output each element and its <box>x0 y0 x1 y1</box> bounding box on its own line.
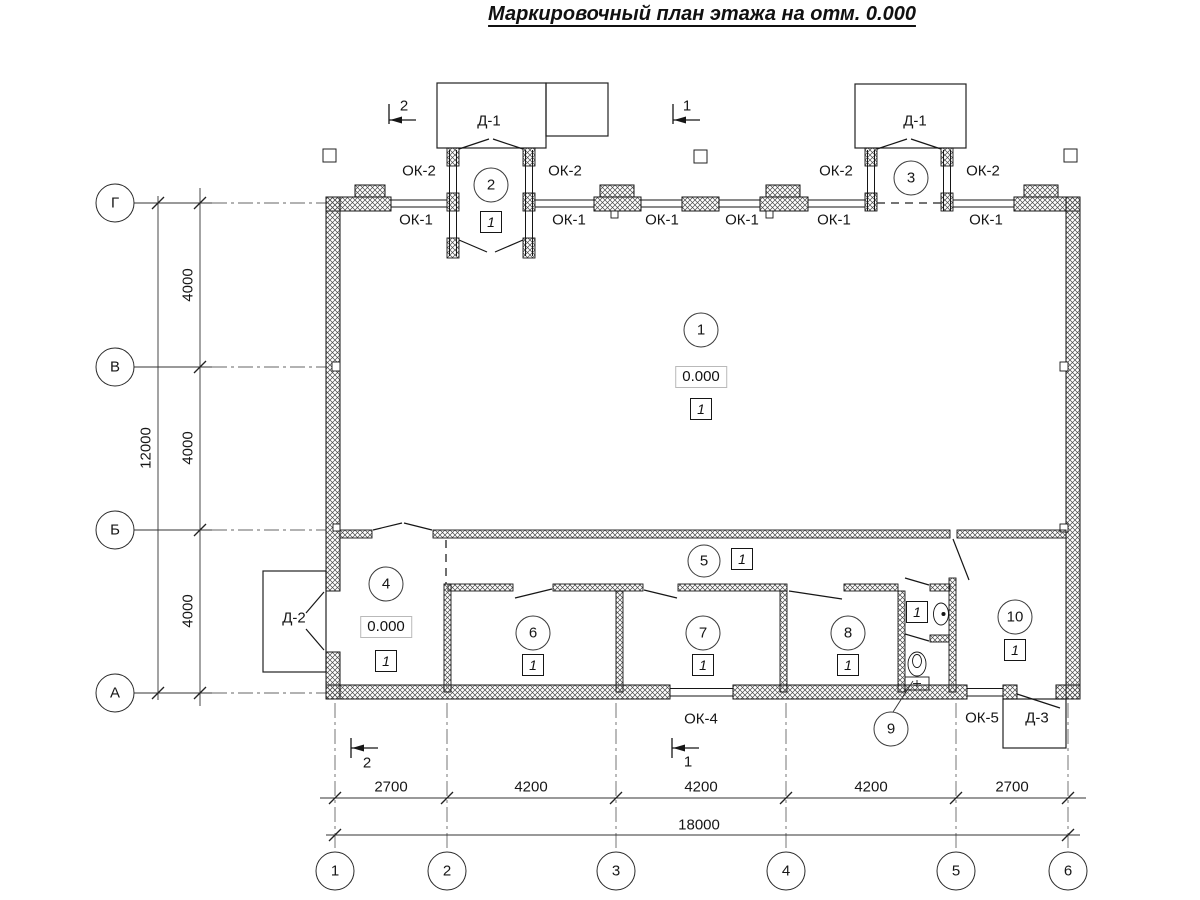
room-number-5: 5 <box>700 554 708 569</box>
window-label-ok1-5: ОК-1 <box>817 213 851 228</box>
axis-col-label-1: 1 <box>331 864 339 879</box>
floor-mark-room7: 1 <box>692 654 714 676</box>
washbasin-icon <box>934 603 949 625</box>
window-label-ok4: ОК-4 <box>684 712 718 727</box>
axis-col-label-6: 6 <box>1064 864 1072 879</box>
room-number-4: 4 <box>382 577 390 592</box>
floor-mark-room4: 1 <box>375 650 397 672</box>
room-number-8: 8 <box>844 626 852 641</box>
window-label-ok1-4: ОК-1 <box>725 213 759 228</box>
door-label-d1-left: Д-1 <box>477 114 501 129</box>
floor-mark-washroom: 1 <box>906 601 928 623</box>
room-number-1: 1 <box>697 323 705 338</box>
room-number-9: 9 <box>887 722 895 737</box>
section-label-1-top: 1 <box>683 99 691 114</box>
axis-row-label-g: Г <box>111 196 119 211</box>
door-label-d3: Д-3 <box>1025 711 1049 726</box>
dim-vertical-1: 4000 <box>181 268 196 301</box>
toilet-icon <box>905 652 929 690</box>
section-label-1-bottom: 1 <box>684 755 692 770</box>
floor-mark-room2: 1 <box>480 211 502 233</box>
porches <box>263 83 1066 748</box>
axis-col-label-2: 2 <box>443 864 451 879</box>
window-label-ok2-4: ОК-2 <box>966 164 1000 179</box>
floor-mark-room1: 1 <box>690 398 712 420</box>
opening-dashed-lines <box>446 203 941 584</box>
drawing-title: Маркировочный план этажа на отм. 0.000 <box>488 3 916 26</box>
axis-col-label-3: 3 <box>612 864 620 879</box>
dim-horizontal-1: 2700 <box>374 780 407 795</box>
dim-vertical-2: 4000 <box>181 431 196 464</box>
dimension-lines <box>134 188 1086 835</box>
room-number-10: 10 <box>1007 610 1024 625</box>
axis-col-label-4: 4 <box>782 864 790 879</box>
window-label-ok1-2: ОК-1 <box>552 213 586 228</box>
axis-col-label-5: 5 <box>952 864 960 879</box>
dim-horizontal-5: 2700 <box>995 780 1028 795</box>
axis-row-label-b: Б <box>110 523 120 538</box>
room-number-3: 3 <box>907 171 915 186</box>
floor-mark-room10: 1 <box>1004 639 1026 661</box>
section-label-2-bottom: 2 <box>363 756 371 771</box>
dim-horizontal-3: 4200 <box>684 780 717 795</box>
dim-vertical-3: 4000 <box>181 594 196 627</box>
dimension-ticks <box>152 197 1074 841</box>
drawing-sheet: Маркировочный план этажа на отм. 0.000 Г… <box>0 0 1200 900</box>
dim-horizontal-total: 18000 <box>678 818 720 833</box>
window-label-ok2-2: ОК-2 <box>548 164 582 179</box>
room-number-2: 2 <box>487 178 495 193</box>
dim-horizontal-4: 4200 <box>854 780 887 795</box>
room-number-7: 7 <box>699 626 707 641</box>
interior-partitions <box>340 148 1066 692</box>
floor-mark-room6: 1 <box>522 654 544 676</box>
elevation-mark-hall: 0.000 <box>675 366 727 388</box>
axis-row-label-v: В <box>110 360 120 375</box>
axis-row-label-a: А <box>110 686 120 701</box>
window-label-ok1-1: ОК-1 <box>399 213 433 228</box>
door-label-d1-right: Д-1 <box>903 114 927 129</box>
window-label-ok2-3: ОК-2 <box>819 164 853 179</box>
elevation-mark-room4: 0.000 <box>360 616 412 638</box>
window-label-ok2-1: ОК-2 <box>402 164 436 179</box>
door-label-d2: Д-2 <box>282 611 306 626</box>
window-label-ok1-6: ОК-1 <box>969 213 1003 228</box>
floor-mark-room5: 1 <box>731 548 753 570</box>
exterior-walls <box>326 185 1080 699</box>
window-label-ok1-3: ОК-1 <box>645 213 679 228</box>
reference-squares <box>323 149 1077 163</box>
window-label-ok5: ОК-5 <box>965 711 999 726</box>
dim-vertical-total: 12000 <box>139 427 154 469</box>
floor-mark-room8: 1 <box>837 654 859 676</box>
section-label-2-top: 2 <box>400 99 408 114</box>
room-number-6: 6 <box>529 626 537 641</box>
dim-horizontal-2: 4200 <box>514 780 547 795</box>
